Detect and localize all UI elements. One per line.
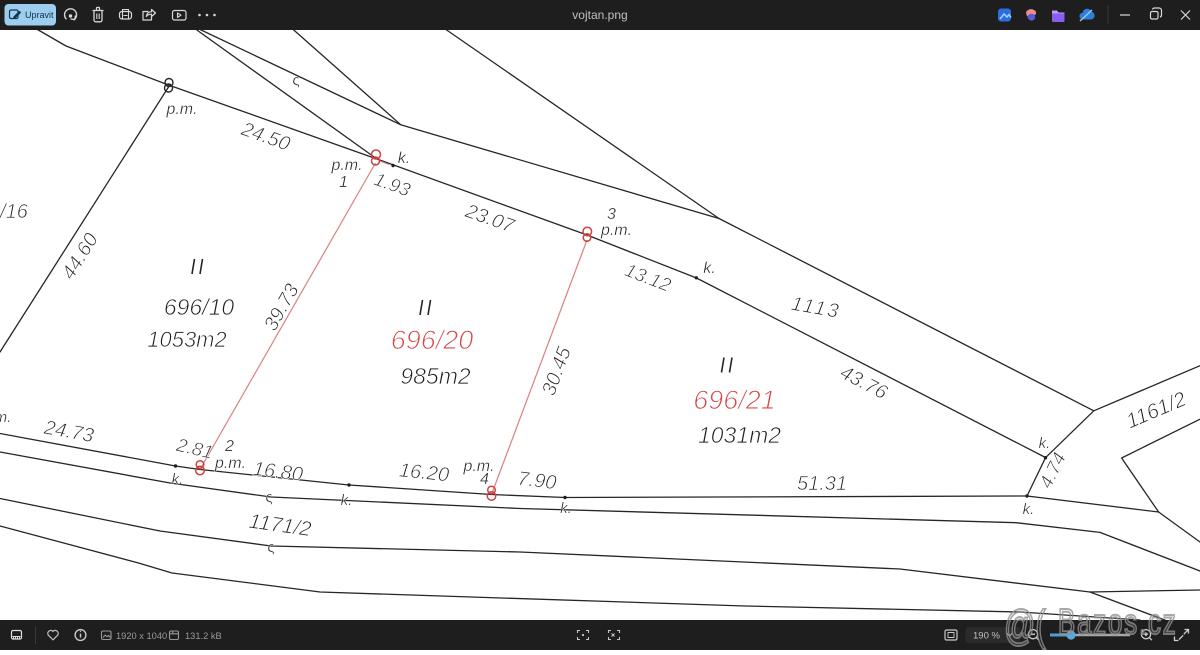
svg-text:Bazos.cz: Bazos.cz bbox=[1058, 602, 1178, 642]
svg-text:@(: @( bbox=[1004, 601, 1046, 649]
